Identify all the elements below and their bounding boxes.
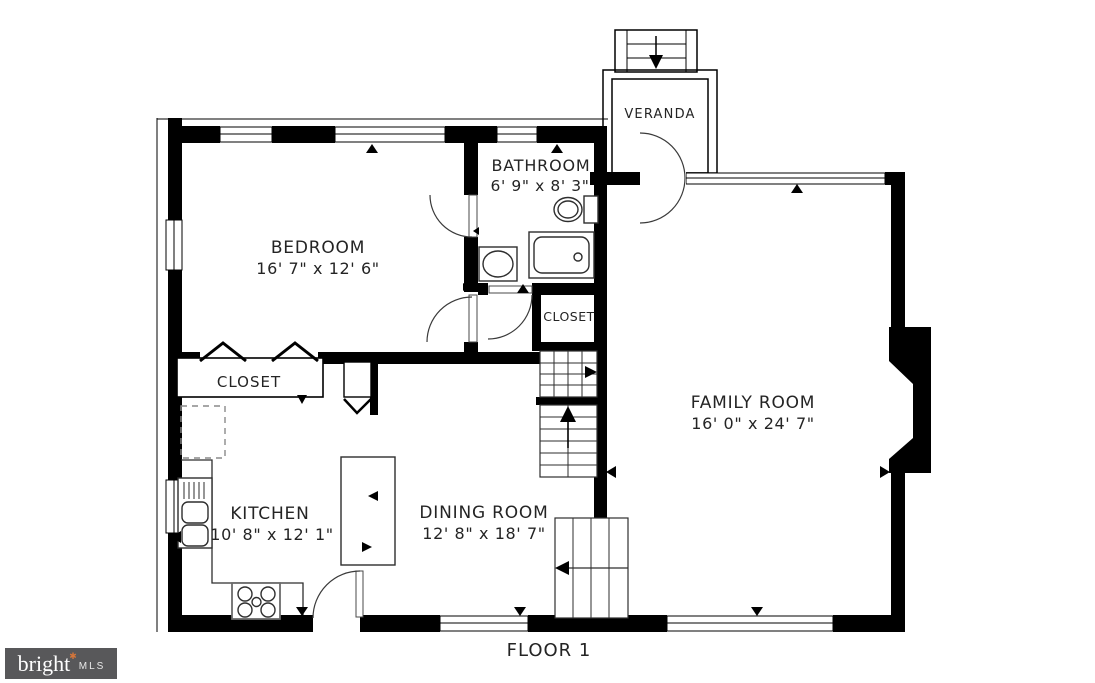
logo-star-icon: ✱ [69, 652, 77, 662]
logo-mls-text: MLS [79, 661, 106, 672]
bifold-door-icon [344, 399, 371, 413]
entry-steps [615, 30, 697, 72]
floor-label: FLOOR 1 [507, 640, 592, 661]
kitchen-label: KITCHEN [230, 504, 309, 524]
bedroom-closet-label: CLOSET [217, 373, 281, 391]
family-room-dims: 16' 0" x 24' 7" [691, 414, 814, 433]
fireplace [889, 327, 931, 473]
refrigerator-space [181, 406, 225, 458]
bathroom-sink [479, 247, 517, 281]
bedroom-label: BEDROOM [271, 238, 365, 258]
bedroom-dims: 16' 7" x 12' 6" [256, 259, 379, 278]
dining-room-label: DINING ROOM [419, 503, 548, 523]
family-room-label: FAMILY ROOM [691, 393, 816, 413]
hall-closet-label: CLOSET [543, 309, 595, 324]
dining-room-dims: 12' 8" x 18' 7" [422, 524, 545, 543]
bathroom-label: BATHROOM [492, 156, 591, 175]
brightmls-logo: bright✱MLS [5, 648, 117, 679]
stairs-basement [555, 518, 628, 618]
kitchen-dims: 10' 8" x 12' 1" [210, 525, 333, 544]
steps-down-arrow [649, 55, 663, 69]
logo-bright-text: bright [18, 653, 71, 675]
bathtub [529, 232, 594, 278]
kitchen-island [341, 457, 395, 565]
kitchen-sink [178, 478, 212, 548]
bathroom-dims: 6' 9" x 8' 3" [491, 177, 590, 195]
hall-small-closet [344, 362, 371, 413]
stove [232, 583, 280, 619]
stairs-up [540, 351, 597, 477]
veranda-label: VERANDA [624, 107, 695, 122]
toilet [554, 196, 598, 223]
floorplan-canvas: BEDROOM 16' 7" x 12' 6" BATHROOM 6' 9" x… [0, 0, 1095, 683]
floorplan-drawing: BEDROOM 16' 7" x 12' 6" BATHROOM 6' 9" x… [0, 0, 1095, 683]
